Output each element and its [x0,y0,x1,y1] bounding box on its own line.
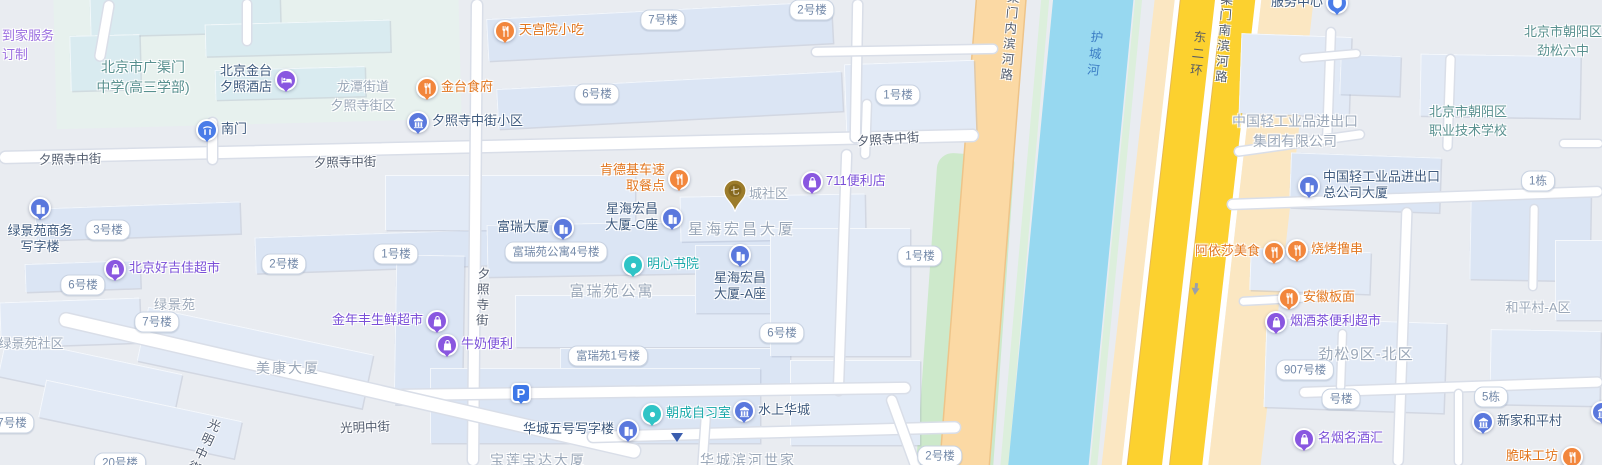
poi-label: 城社区 [749,186,788,202]
food-icon [494,20,516,42]
area-label-line: 北京市朝阳区 [1524,21,1602,40]
poi-label: 名烟名酒汇 [1318,430,1383,446]
poi-label: 朝成自习室 [666,405,731,421]
poi-label-line: 711便利店 [826,173,886,189]
label-jinsong9-north: 劲松9区-北区 [1318,343,1413,364]
building-label: 2号楼 [261,254,306,275]
poi-label-line: 中国轻工业品进出口 [1323,169,1440,185]
poi-label: 脆味工坊 [1506,448,1558,464]
building-label: 7号楼 [134,312,179,333]
hotel-icon [275,69,297,91]
building-icon [552,217,574,239]
poi-label-line: 夕照酒店 [220,79,272,95]
building-label: 6号楼 [60,275,105,296]
road[interactable] [0,130,978,163]
label-huacheng-binhe: 华城滨河世家 [700,450,796,465]
area-label-line: 北京市朝阳区 [1429,101,1507,120]
building-label: 6号楼 [574,84,619,105]
community-icon [1472,411,1494,433]
road[interactable] [1560,140,1602,147]
study-icon [641,403,663,425]
poi-label-line: 阿依莎美食 [1195,243,1260,259]
poi-label: 天宫院小吃 [519,22,584,38]
poi-label-line: 明心书院 [647,256,699,272]
area-label-line: 龙潭街道 [330,76,395,95]
community-icon [1591,401,1602,423]
poi-label-line: 金台食府 [441,79,493,95]
area-label-line: 中国轻工业品进出口 [1232,111,1358,131]
area-label-line: 集团有限公司 [1232,131,1358,151]
poi-label: 烧烤撸串 [1311,241,1363,257]
building-label: 1号楼 [373,244,418,265]
poi-label-line: 华城五号写字楼 [523,421,614,437]
poi-label: 肯德基车速取餐点 [600,162,665,195]
label-meikang-tower: 美康大厦 [256,358,320,378]
area-label-line: 绿景苑 [154,294,196,313]
poi-label-line: 夕照寺中街小区 [432,113,523,129]
poi-label-line: 水上华城 [758,402,810,418]
food-icon [416,77,438,99]
building-icon [29,197,51,219]
road[interactable] [812,45,997,56]
shop-icon [436,334,458,356]
building[interactable] [496,71,843,129]
building-label: 2号楼 [917,446,962,465]
label-baolian-tower: 宝莲宝达大厦 [490,450,586,465]
food-icon [668,168,690,190]
shop-icon [1265,311,1287,333]
label-vocational-school: 北京市朝阳区职业技术学校 [1429,101,1507,139]
poi-label: 中国轻工业品进出口总公司大厦 [1323,169,1440,202]
road[interactable] [1455,390,1462,465]
poi-label-line: 南门 [221,121,247,137]
label-hepingcun-a: 和平村-A区 [1505,297,1570,316]
area-label-line: 夕照寺街区 [330,95,395,114]
poi-label: 金年丰生鲜超市 [332,312,423,328]
road[interactable] [1529,205,1537,290]
poi-label-line: 写字楼 [7,239,72,255]
area-label-line: 美康大厦 [256,358,320,378]
area-label-line: 宝莲宝达大厦 [490,450,586,465]
building-label: 1号楼 [875,85,920,106]
shop-icon [1293,428,1315,450]
poi-label-line: 星海宏昌 [714,270,766,286]
label-guangqumen-school: 北京市广渠门中学(高三学部) [96,57,189,97]
pin-tail-decoration [671,433,683,448]
building-label: 7号楼 [640,10,685,31]
building-label: 2号楼 [789,0,834,21]
area-label-line: 星海宏昌大厦 [688,218,796,239]
building-label: 号楼 [1322,389,1361,410]
shop-icon [104,258,126,280]
poi-label: 牛奶便利 [461,336,513,352]
poi-label-line: 脆味工坊 [1506,448,1558,464]
area-label-line: 职业技术学校 [1429,120,1507,139]
poi-label: 烟酒茶便利超市 [1290,313,1381,329]
poi-label-line: 总公司大厦 [1323,185,1440,201]
area-label-line: 和平村-A区 [1505,297,1570,316]
service-icon [1326,0,1348,14]
label-zhongqing-group: 中国轻工业品进出口集团有限公司 [1232,111,1358,151]
poi-label-line: 金年丰生鲜超市 [332,312,423,328]
area-label-line: 北京市广渠门 [96,57,189,77]
poi-label: 水上华城 [758,402,810,418]
poi-label: 北京好吉佳超市 [129,260,220,276]
poi-label-line: 肯德基车速 [600,162,665,178]
building-label: 20号楼 [94,453,146,465]
poi-label: 711便利店 [826,173,886,189]
poi-label-line: 取餐点 [600,178,665,194]
building[interactable] [205,20,391,57]
gate-icon [196,119,218,141]
poi-label: 星海宏昌大厦-A座 [714,270,766,303]
shop-icon [426,310,448,332]
area-label-line: 劲松9区-北区 [1318,343,1413,364]
poi-label: 金台食府 [441,79,493,95]
poi-label-line: 服务中心 [1271,0,1323,10]
poi-label: 北京金台夕照酒店 [220,63,272,96]
label-lvjingyuan: 绿景苑 [154,294,196,313]
area-label-line: 到家服务 [2,25,54,44]
building-icon [1298,175,1320,197]
building-label: 3号楼 [85,220,130,241]
poi-label: 明心书院 [647,256,699,272]
label-xinghai-area: 星海宏昌大厦 [688,218,796,239]
study-icon [622,254,644,276]
poi-label-line: 安徽板面 [1303,289,1355,305]
poi-label-line: 天宫院小吃 [519,22,584,38]
area-label-line: 绿景苑社区 [0,333,64,352]
label-lvjingyuan-shequ: 绿景苑社区 [0,333,64,352]
svg-text:七: 七 [730,186,739,196]
poi-label-line: 北京好吉佳超市 [129,260,220,276]
poi-label: 富瑞大厦 [497,219,549,235]
building-icon [617,419,639,441]
poi-label-line: 大厦-A座 [714,286,766,302]
building-label: 富瑞苑公寓4号楼 [505,242,608,263]
poi-label-line: 大厦-C座 [605,217,658,233]
food-icon [1263,241,1285,263]
street-name: 光明中街 [340,416,391,437]
poi-label-line: 名烟名酒汇 [1318,430,1383,446]
selected-place-pin-icon: 七 [722,179,748,213]
area-label-line: 华城滨河世家 [700,450,796,465]
traffic-direction-arrow [1190,288,1199,300]
building[interactable] [1239,33,1352,117]
poi-label: 华城五号写字楼 [523,421,614,437]
poi-label-line: 星海宏昌 [605,201,658,217]
building-label: 907号楼 [1276,360,1334,381]
label-jinsong6-school: 北京市朝阳区劲松六中 [1524,21,1602,59]
street-name: 夕照寺中街 [39,148,102,168]
building-icon [661,207,683,229]
building-label: 7号楼 [0,413,35,434]
street-name: 夕照寺街 [471,267,492,330]
building[interactable] [1339,54,1400,96]
poi-label: 服务中心 [1271,0,1323,10]
poi-label-line: 牛奶便利 [461,336,513,352]
map-canvas[interactable]: 7号楼6号楼2号楼1号楼3号楼2号楼6号楼1号楼富瑞苑公寓4号楼富瑞苑1号楼6号… [0,0,1602,465]
poi-label-line: 烟酒茶便利超市 [1290,313,1381,329]
poi-label-line: 绿景苑商务 [7,223,72,239]
poi-label-line: 城社区 [749,186,788,202]
poi-label: 安徽板面 [1303,289,1355,305]
parking-icon: P [511,383,531,403]
poi-label: 星海宏昌大厦-C座 [605,201,658,234]
street-name: 夕照寺中街 [856,126,920,149]
area-label-line: 中学(高三学部) [96,77,189,97]
food-icon [1286,239,1308,261]
label-home-service: 到家服务订制 [2,25,54,63]
community-icon [733,400,755,422]
poi-label-line: 烧烤撸串 [1311,241,1363,257]
label-longtan-street: 龙潭街道夕照寺街区 [330,76,395,114]
street-name: 夕照寺中街 [314,151,377,171]
area-label-line: 富瑞苑公寓 [569,280,654,301]
building-label: 富瑞苑1号楼 [568,346,648,367]
food-icon [1561,446,1583,465]
building-label: 1栋 [1521,171,1555,192]
poi-label: 阿依莎美食 [1195,243,1260,259]
building-label: 1号楼 [897,246,942,267]
shop-icon [801,171,823,193]
community-icon [407,111,429,133]
building-icon [729,244,751,266]
poi-label-line: 新家和平村 [1497,413,1562,429]
building-label: 5栋 [1474,387,1508,408]
poi-label: 新家和平村 [1497,413,1562,429]
building-label: 6号楼 [759,323,804,344]
poi-label: 绿景苑商务写字楼 [7,223,72,256]
area-label-line: 劲松六中 [1524,40,1602,59]
food-icon [1278,287,1300,309]
poi-label-line: 北京金台 [220,63,272,79]
poi-label: 夕照寺中街小区 [432,113,523,129]
area-label-line: 订制 [2,44,54,63]
road[interactable] [243,0,251,45]
poi-label: 南门 [221,121,247,137]
poi-label-line: 富瑞大厦 [497,219,549,235]
poi-label-line: 朝成自习室 [666,405,731,421]
label-furuiyuan-area: 富瑞苑公寓 [569,280,654,301]
